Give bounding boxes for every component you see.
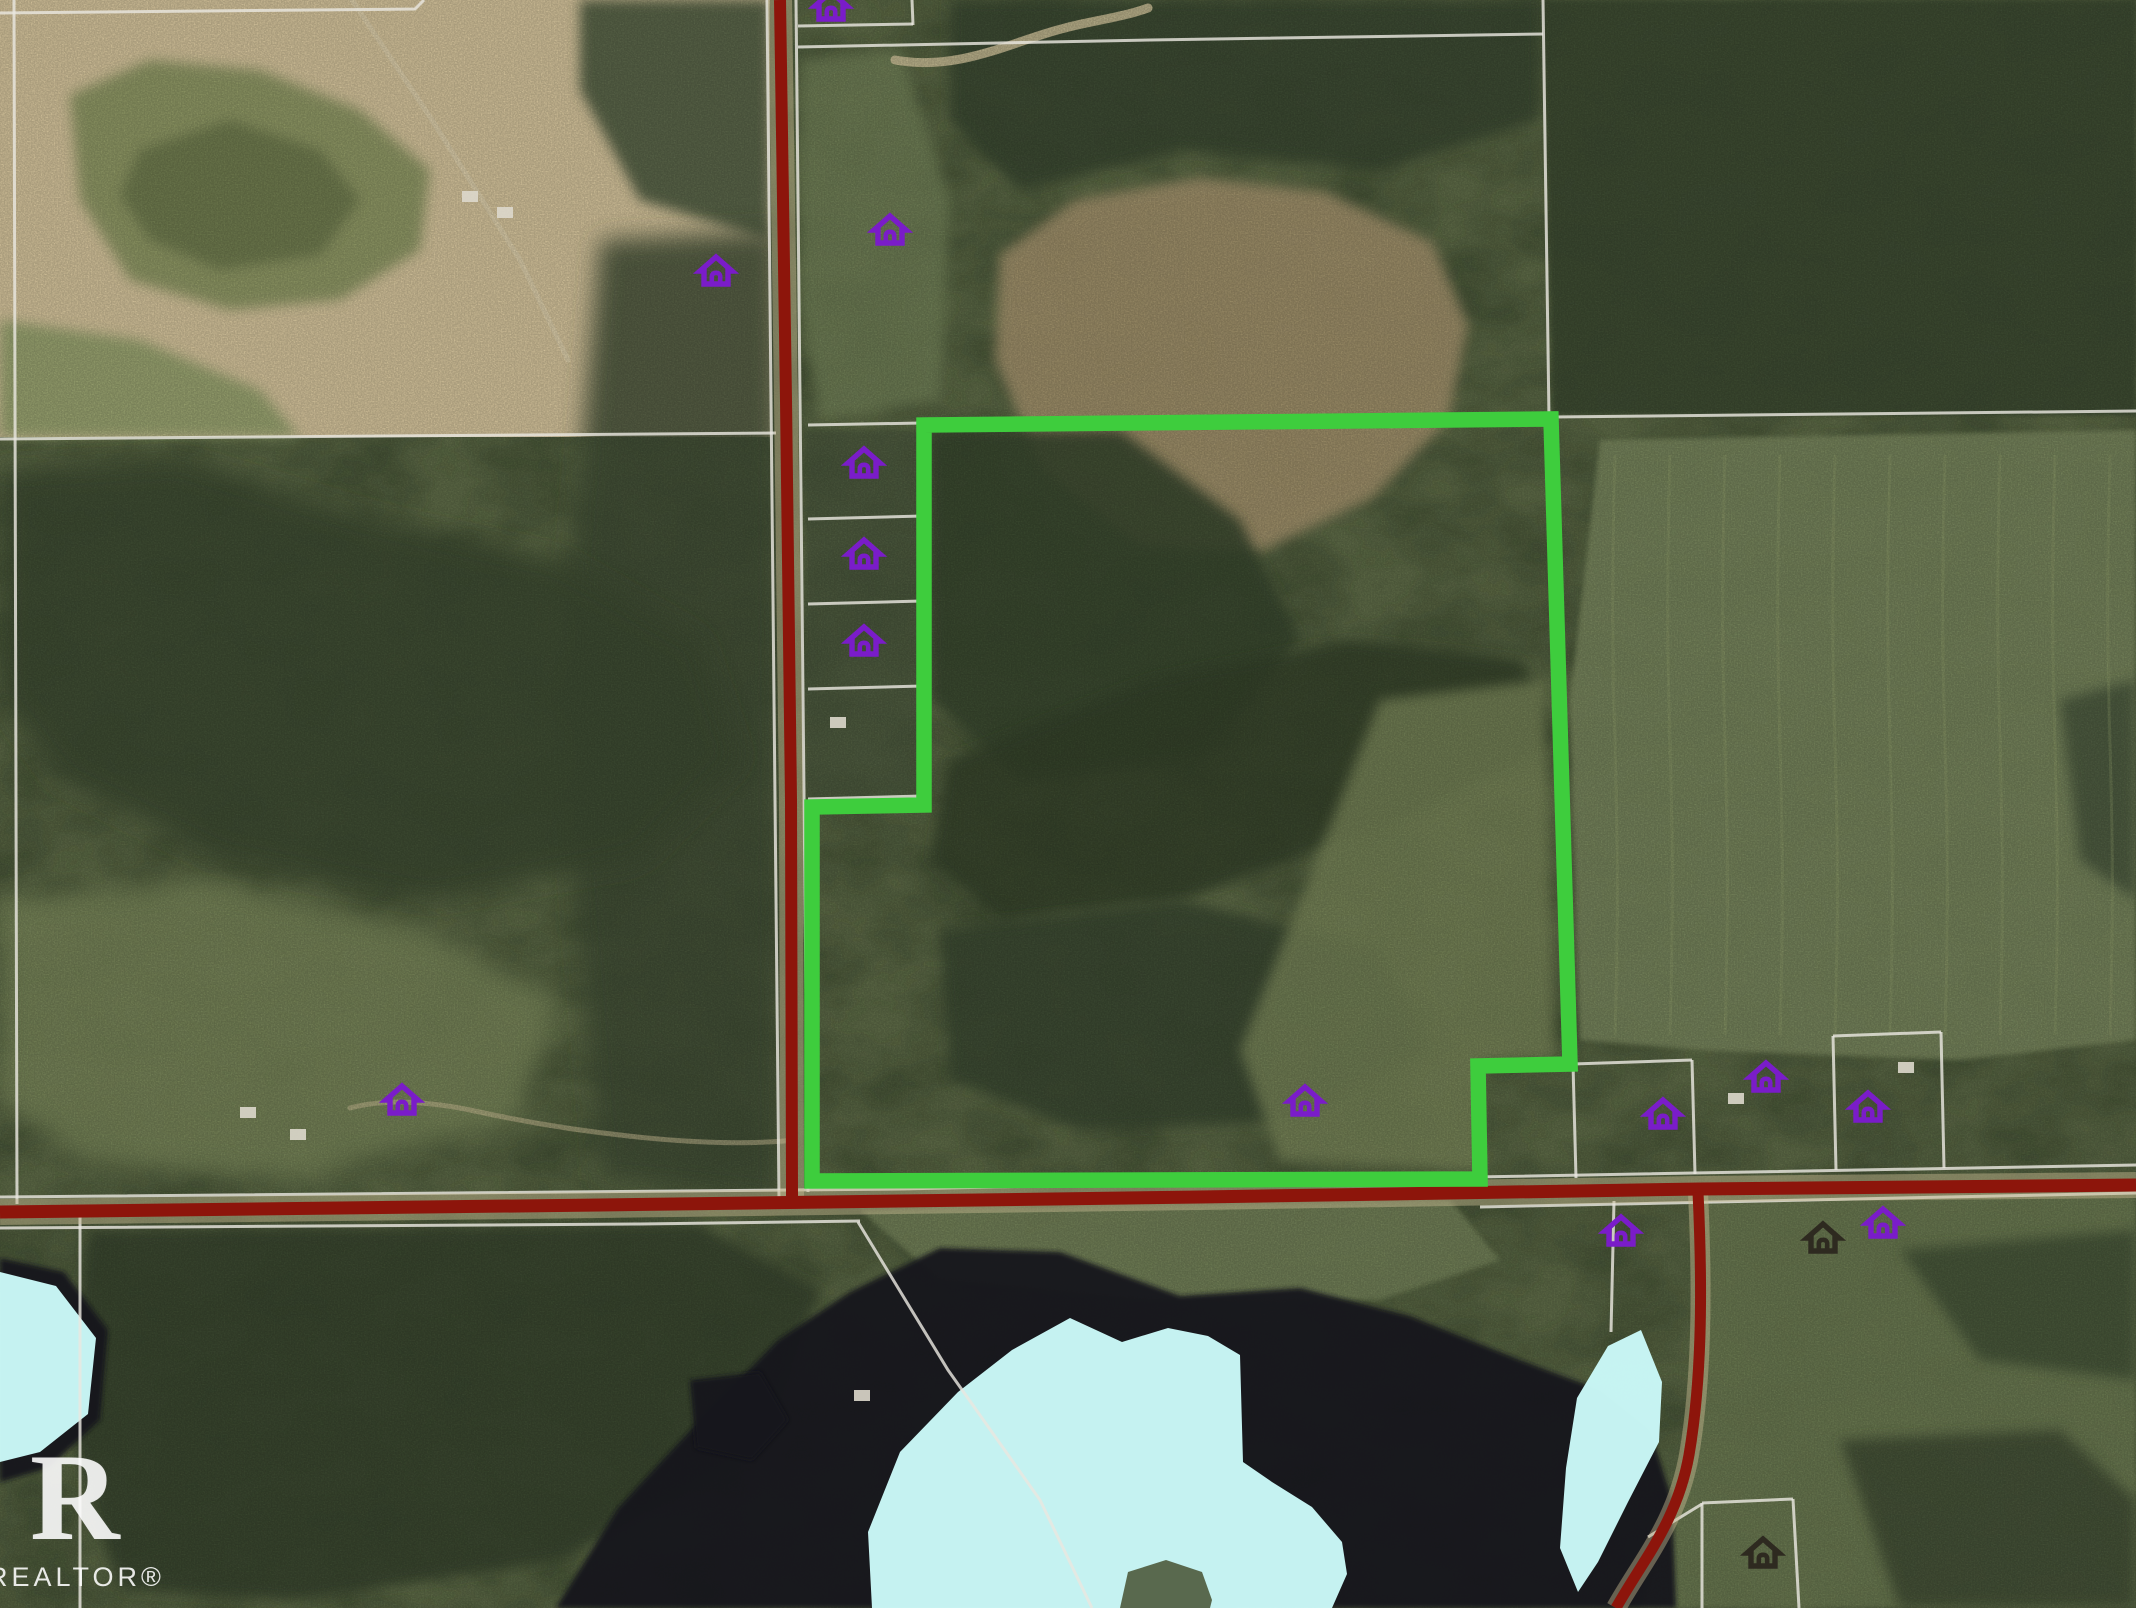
building bbox=[830, 717, 846, 728]
building bbox=[497, 207, 513, 218]
satellite-map: R REALTOR® bbox=[0, 0, 2136, 1608]
parcel-line bbox=[808, 423, 922, 425]
parcel-line bbox=[912, 0, 913, 25]
map-svg bbox=[0, 0, 2136, 1608]
building bbox=[290, 1129, 306, 1140]
building bbox=[1898, 1062, 1914, 1073]
parcel-line bbox=[798, 24, 913, 26]
building bbox=[462, 191, 478, 202]
building bbox=[1728, 1093, 1744, 1104]
building bbox=[854, 1390, 870, 1401]
building bbox=[240, 1107, 256, 1118]
